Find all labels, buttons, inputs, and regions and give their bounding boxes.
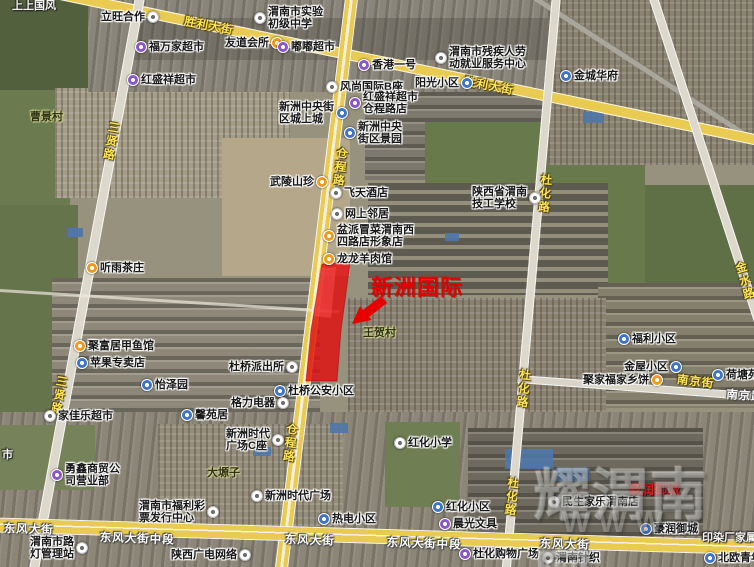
poi-label-text: 王贺村: [363, 327, 396, 339]
poi-marker-purple-icon[interactable]: [51, 469, 63, 481]
poi-label-line: 广场C座: [226, 440, 270, 452]
poi-label-text: 杜化购物广场: [473, 548, 539, 560]
poi-label-line: 街区景园: [358, 133, 402, 145]
poi-label-line: 初级中学: [268, 18, 323, 30]
poi-marker-blue-icon[interactable]: [461, 77, 473, 89]
poi-label-line: 勇鑫商贸公: [65, 463, 120, 475]
poi-label-text: 大塬子: [207, 467, 240, 479]
poi-label-text: 杜桥公安小区: [288, 385, 354, 397]
map-poi-label[interactable]: 红化小学: [394, 437, 452, 449]
poi-label-line: 大塬子: [207, 467, 240, 479]
poi-label-line: 杜化购物广场: [473, 548, 539, 560]
map-poi-label[interactable]: 阳光小区: [415, 77, 473, 89]
poi-label-text: 红化小区: [446, 501, 490, 513]
poi-label-line: 听雨茶庄: [100, 262, 144, 274]
poi-label-line: 仓程路店: [363, 103, 418, 115]
map-poi-label[interactable]: 聚家福家乡饼: [583, 374, 663, 386]
map-poi-label[interactable]: 热电小区: [318, 513, 376, 525]
poi-label-line: 家佳乐超市: [58, 410, 113, 422]
poi-label-text: 新洲时代广场C座: [226, 428, 270, 452]
poi-label-text: 红盛祥超市仓程路店: [363, 91, 418, 115]
poi-label-text: 格力电器: [231, 397, 275, 409]
poi-marker-white-icon[interactable]: [239, 549, 251, 561]
poi-marker-white-icon[interactable]: [251, 490, 263, 502]
poi-marker-orange-icon[interactable]: [323, 230, 335, 242]
poi-label-text: 聚富居甲鱼馆: [88, 340, 154, 352]
poi-marker-blue-icon[interactable]: [670, 361, 682, 373]
poi-marker-white-icon[interactable]: [207, 506, 219, 518]
map-poi-label: 曹景村: [30, 111, 63, 123]
poi-marker-orange-icon[interactable]: [316, 176, 328, 188]
poi-marker-blue-icon[interactable]: [141, 379, 153, 391]
poi-label-text: 武陵山珍: [270, 176, 314, 188]
poi-label-line: 红盛祥超市: [363, 91, 418, 103]
poi-marker-blue-icon[interactable]: [76, 357, 88, 369]
poi-label-text: 新洲中央街区城上城: [279, 101, 334, 125]
road-label: 东风大街中段: [99, 529, 175, 548]
poi-label-text: 怡泽园: [155, 379, 188, 391]
map-poi-label[interactable]: 晨光文具: [439, 518, 497, 530]
poi-label-line: 曹景村: [30, 111, 63, 123]
poi-label-text: 市: [2, 449, 13, 461]
map-poi-label[interactable]: 红盛祥超市: [127, 74, 196, 86]
map-poi-label[interactable]: 红化小区: [432, 501, 490, 513]
poi-label-line: 红盛祥超市: [141, 74, 196, 86]
poi-label-line: 聚家福家乡饼: [583, 374, 649, 386]
poi-label-line: 渭南市福利彩: [139, 500, 205, 512]
poi-label-line: 新洲中央街: [279, 101, 334, 113]
map-poi-label[interactable]: 新洲时代广场: [251, 490, 331, 502]
map-poi-label[interactable]: 聚富居甲鱼馆: [74, 340, 154, 352]
poi-label-line: 嘟嘟超市: [291, 41, 335, 53]
poi-marker-purple-icon[interactable]: [439, 518, 451, 530]
poi-label-line: 新洲时代广场: [265, 490, 331, 502]
map-poi-label[interactable]: 勇鑫商贸公司营业部: [51, 463, 120, 487]
poi-label-line: 龙龙羊肉馆: [337, 253, 392, 265]
poi-label-line: 福万家超市: [149, 41, 204, 53]
poi-label-text: 勇鑫商贸公司营业部: [65, 463, 120, 487]
poi-label-line: 香港一号: [372, 59, 416, 71]
map-poi-label[interactable]: 家佳乐超市: [44, 410, 113, 422]
poi-label-text: 渭南市实验初级中学: [268, 6, 323, 30]
poi-marker-white-icon[interactable]: [147, 11, 159, 23]
poi-marker-orange-icon[interactable]: [86, 262, 98, 274]
poi-label-line: 格力电器: [231, 397, 275, 409]
map-poi-label[interactable]: 怡泽园: [141, 379, 188, 391]
poi-label-line: 苹果专卖店: [90, 357, 145, 369]
map-poi-label[interactable]: 市: [2, 449, 13, 461]
poi-marker-white-icon[interactable]: [277, 397, 289, 409]
map-poi-label[interactable]: 杜化购物广场: [459, 548, 539, 560]
poi-label-line: 武陵山珍: [270, 176, 314, 188]
poi-marker-white-icon[interactable]: [44, 410, 56, 422]
map-poi-label[interactable]: 听雨茶庄: [86, 262, 144, 274]
poi-marker-orange-icon[interactable]: [651, 374, 663, 386]
poi-label-line: 盆派冒菜渭南西: [337, 224, 414, 236]
map-poi-label[interactable]: 杜桥公安小区: [274, 385, 354, 397]
map-poi-label[interactable]: 格力电器: [231, 397, 289, 409]
poi-marker-white-icon[interactable]: [76, 542, 88, 554]
map-poi-label[interactable]: 渭南市残疾人劳动就业服务中心: [435, 46, 526, 70]
poi-label-text: 聚家福家乡饼: [583, 374, 649, 386]
poi-label-text: 飞天酒店: [344, 187, 388, 199]
poi-label-text: 荷塘苑: [726, 369, 754, 381]
poi-label-text: 新洲时代广场: [265, 490, 331, 502]
poi-marker-purple-icon[interactable]: [127, 74, 139, 86]
poi-label-line: 上上国风: [12, 0, 56, 12]
map-poi-label[interactable]: 立旺合作: [101, 11, 159, 23]
poi-label-line: 金屋小区: [624, 361, 668, 373]
poi-label-line: 技工学校: [472, 198, 527, 210]
map-poi-label[interactable]: 陕西省渭南技工学校: [472, 186, 541, 210]
poi-label-line: 新洲中央: [358, 121, 402, 133]
poi-label-line: 渭南市实验: [268, 6, 323, 18]
poi-label-text: 杜桥派出所: [229, 361, 284, 373]
poi-label-line: 司营业部: [65, 475, 120, 487]
map-poi-label[interactable]: 渭南市路灯管理站: [30, 536, 88, 560]
poi-label-text: 陕西省渭南技工学校: [472, 186, 527, 210]
poi-marker-blue-icon[interactable]: [432, 501, 444, 513]
poi-label-line: 阳光小区: [415, 77, 459, 89]
poi-marker-blue-icon[interactable]: [318, 513, 330, 525]
poi-label-text: 嘟嘟超市: [291, 41, 335, 53]
poi-label-line: 福利小区: [632, 333, 676, 345]
poi-label-text: 渭南市路灯管理站: [30, 536, 74, 560]
poi-label-line: 杜桥公安小区: [288, 385, 354, 397]
map-poi-label[interactable]: 福利小区: [618, 333, 676, 345]
poi-label-line: 友道会所: [225, 37, 269, 49]
poi-label-line: 网上邻居: [345, 208, 389, 220]
poi-label-text: 金屋小区: [624, 361, 668, 373]
poi-label-line: 动就业服务中心: [449, 58, 526, 70]
map-poi-label[interactable]: 渭南市实验初级中学: [254, 6, 323, 30]
poi-label-text: 上上国风: [12, 0, 56, 12]
map-poi-label[interactable]: 友道会所: [225, 37, 283, 49]
poi-label-text: 阳光小区: [415, 77, 459, 89]
map-poi-label[interactable]: 飞天酒店: [330, 187, 388, 199]
map-poi-label[interactable]: 红盛祥超市仓程路店: [349, 91, 418, 115]
poi-label-text: 金城华府: [574, 70, 618, 82]
poi-label-text: 友道会所: [225, 37, 269, 49]
poi-label-line: 金城华府: [574, 70, 618, 82]
poi-label-text: 陕西广电网络: [171, 549, 237, 561]
poi-label-line: 杜桥派出所: [229, 361, 284, 373]
poi-marker-orange-icon[interactable]: [323, 253, 335, 265]
poi-label-text: 网上邻居: [345, 208, 389, 220]
poi-marker-white-icon[interactable]: [435, 52, 447, 64]
poi-marker-purple-icon[interactable]: [358, 59, 370, 71]
poi-label-line: 飞天酒店: [344, 187, 388, 199]
poi-label-line: 陕西省渭南: [472, 186, 527, 198]
poi-marker-purple-icon[interactable]: [349, 97, 361, 109]
poi-label-text: 家佳乐超市: [58, 410, 113, 422]
poi-label-line: 渭南市残疾人劳: [449, 46, 526, 58]
map-poi-label[interactable]: 武陵山珍: [270, 176, 328, 188]
poi-marker-purple-icon[interactable]: [135, 41, 147, 53]
poi-label-text: 曹景村: [30, 111, 63, 123]
map-poi-label[interactable]: 渭南市福利彩票发行中心: [139, 500, 219, 524]
poi-label-text: 听雨茶庄: [100, 262, 144, 274]
poi-marker-white-icon[interactable]: [286, 361, 298, 373]
road-label: 东风大街: [284, 531, 335, 549]
poi-label-text: 馨苑居: [195, 409, 228, 421]
map-poi-label[interactable]: 香港一号: [358, 59, 416, 71]
poi-label-line: 渭南市路: [30, 536, 74, 548]
map-poi-label[interactable]: 陕西广电网络: [171, 549, 251, 561]
map-poi-label[interactable]: 盆派冒菜渭南西四路店形象店: [323, 224, 414, 248]
poi-label-line: 区城上城: [279, 113, 334, 125]
poi-marker-white-icon[interactable]: [330, 187, 342, 199]
road-label: 东风大街中段: [386, 534, 462, 553]
highlight-title: 新洲国际: [371, 270, 463, 302]
poi-label-line: 红化小学: [408, 437, 452, 449]
poi-marker-white-icon[interactable]: [326, 81, 338, 93]
poi-label-text: 苹果专卖店: [90, 357, 145, 369]
poi-marker-blue-icon[interactable]: [560, 70, 572, 82]
poi-marker-white-icon[interactable]: [331, 208, 343, 220]
map-poi-label[interactable]: 荷塘苑: [712, 369, 754, 381]
map-poi-label[interactable]: 馨苑居: [181, 409, 228, 421]
poi-marker-blue-icon[interactable]: [618, 333, 630, 345]
watermark-url: WWW: [562, 506, 671, 540]
poi-label-text: 盆派冒菜渭南西四路店形象店: [337, 224, 414, 248]
poi-marker-blue-icon[interactable]: [274, 385, 286, 397]
poi-marker-white-icon[interactable]: [394, 437, 406, 449]
poi-label-line: 王贺村: [363, 327, 396, 339]
poi-label-line: 陕西广电网络: [171, 549, 237, 561]
poi-label-line: 四路店形象店: [337, 236, 414, 248]
poi-label-line: 热电小区: [332, 513, 376, 525]
poi-label-text: 晨光文具: [453, 518, 497, 530]
poi-label-text: 立旺合作: [101, 11, 145, 23]
map-poi-label[interactable]: 金城华府: [560, 70, 618, 82]
poi-label-line: 新洲时代: [226, 428, 270, 440]
poi-label-text: 红化小学: [408, 437, 452, 449]
poi-label-text: 热电小区: [332, 513, 376, 525]
map-poi-label[interactable]: 上上国风: [12, 0, 56, 12]
poi-label-line: 荷塘苑: [726, 369, 754, 381]
poi-label-text: 红盛祥超市: [141, 74, 196, 86]
poi-label-line: 市: [2, 449, 13, 461]
map-poi-label: 王贺村: [363, 327, 396, 339]
map-poi-label[interactable]: 新洲中央街区城上城: [279, 101, 348, 125]
poi-marker-blue-icon[interactable]: [336, 107, 348, 119]
map-poi-label: 大塬子: [207, 467, 240, 479]
poi-label-line: 灯管理站: [30, 548, 74, 560]
poi-label-line: 票发行中心: [139, 512, 205, 524]
poi-marker-blue-icon[interactable]: [344, 127, 356, 139]
poi-label-line: 聚富居甲鱼馆: [88, 340, 154, 352]
poi-label-text: 福万家超市: [149, 41, 204, 53]
poi-label-text: 渭南市福利彩票发行中心: [139, 500, 205, 524]
map-poi-label[interactable]: 新洲中央街区景园: [344, 121, 402, 145]
map-poi-label[interactable]: 福万家超市: [135, 41, 204, 53]
poi-label-line: 晨光文具: [453, 518, 497, 530]
satellite-map-canvas[interactable]: 立旺合作渭南市实验初级中学福万家超市友道会所嘟嘟超市红盛祥超市香港一号风尚国际B…: [0, 0, 754, 567]
poi-label-text: 新洲中央街区景园: [358, 121, 402, 145]
map-poi-label[interactable]: 龙龙羊肉馆: [323, 253, 392, 265]
poi-marker-orange-icon[interactable]: [74, 340, 86, 352]
poi-marker-white-icon[interactable]: [529, 192, 541, 204]
map-poi-label[interactable]: 网上邻居: [331, 208, 389, 220]
map-poi-label[interactable]: 苹果专卖店: [76, 357, 145, 369]
poi-label-text: 香港一号: [372, 59, 416, 71]
poi-label-text: 龙龙羊肉馆: [337, 253, 392, 265]
poi-label-text: 福利小区: [632, 333, 676, 345]
poi-label-line: 红化小区: [446, 501, 490, 513]
poi-marker-white-icon[interactable]: [272, 434, 284, 446]
map-poi-label[interactable]: 金屋小区: [624, 361, 682, 373]
map-poi-label[interactable]: 新洲时代广场C座: [226, 428, 284, 452]
poi-label-line: 怡泽园: [155, 379, 188, 391]
poi-label-line: 立旺合作: [101, 11, 145, 23]
map-poi-label[interactable]: 杜桥派出所: [229, 361, 298, 373]
poi-label-text: 渭南市残疾人劳动就业服务中心: [449, 46, 526, 70]
map-poi-label[interactable]: 嘟嘟超市: [277, 41, 335, 53]
poi-marker-blue-icon[interactable]: [181, 409, 193, 421]
poi-label-line: 馨苑居: [195, 409, 228, 421]
poi-marker-blue-icon[interactable]: [712, 369, 724, 381]
poi-marker-purple-icon[interactable]: [277, 41, 289, 53]
poi-marker-purple-icon[interactable]: [459, 548, 471, 560]
poi-marker-white-icon[interactable]: [254, 12, 266, 24]
road-label: 南京路: [726, 386, 754, 405]
